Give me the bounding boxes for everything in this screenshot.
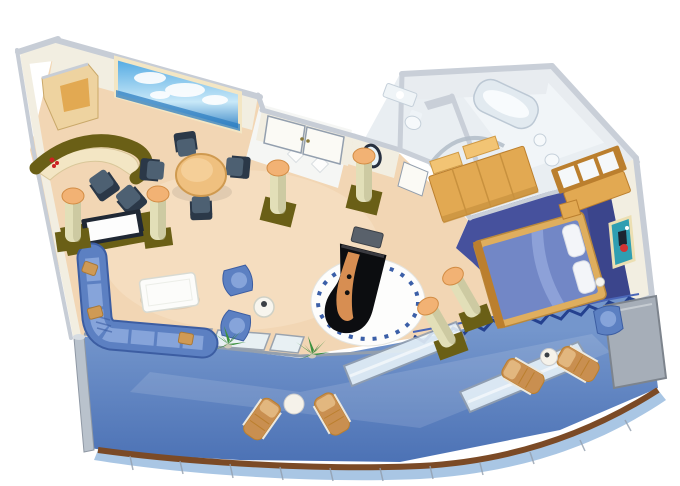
- columns-part: [62, 188, 84, 242]
- columns-part: [267, 160, 289, 214]
- framed-wall-picture-part: [620, 244, 628, 252]
- balcony-table: [541, 349, 558, 366]
- flower-decoration-part: [52, 164, 56, 168]
- balcony-table: [284, 394, 304, 414]
- mural-clouds-part: [134, 72, 166, 84]
- dining-chair: [190, 196, 213, 221]
- bedroom-armchair: [593, 304, 624, 337]
- glass-panel: [270, 334, 304, 353]
- flower-decoration-part: [55, 161, 59, 165]
- framed-wall-picture: [610, 217, 634, 267]
- picture-figure: [618, 230, 627, 246]
- door-handle: [306, 139, 310, 143]
- second-sink: [534, 134, 546, 146]
- mural-clouds-part: [165, 83, 205, 97]
- framed-wall-picture-part: [625, 226, 629, 230]
- door-handle: [300, 137, 304, 141]
- table-lamp: [261, 301, 267, 307]
- columns-part: [147, 186, 169, 240]
- columns-part: [353, 148, 375, 202]
- coffee-table-part: [139, 272, 199, 312]
- suite-floorplan-illustration: [0, 0, 680, 486]
- mural-clouds-part: [202, 95, 228, 105]
- living-room-furniture-part: [181, 158, 213, 182]
- table-item: [545, 353, 550, 358]
- balcony-left-post-part: [73, 334, 85, 340]
- floorplan-canvas: [0, 0, 680, 486]
- mural-clouds-part: [150, 91, 170, 99]
- floor-lamp: [596, 278, 605, 287]
- coffee-table: [139, 272, 199, 312]
- second-toilet: [545, 154, 559, 166]
- bath-left-wall-cap: [400, 74, 402, 150]
- flower-decoration-part: [50, 158, 55, 163]
- throw-pillows-part: [178, 332, 194, 345]
